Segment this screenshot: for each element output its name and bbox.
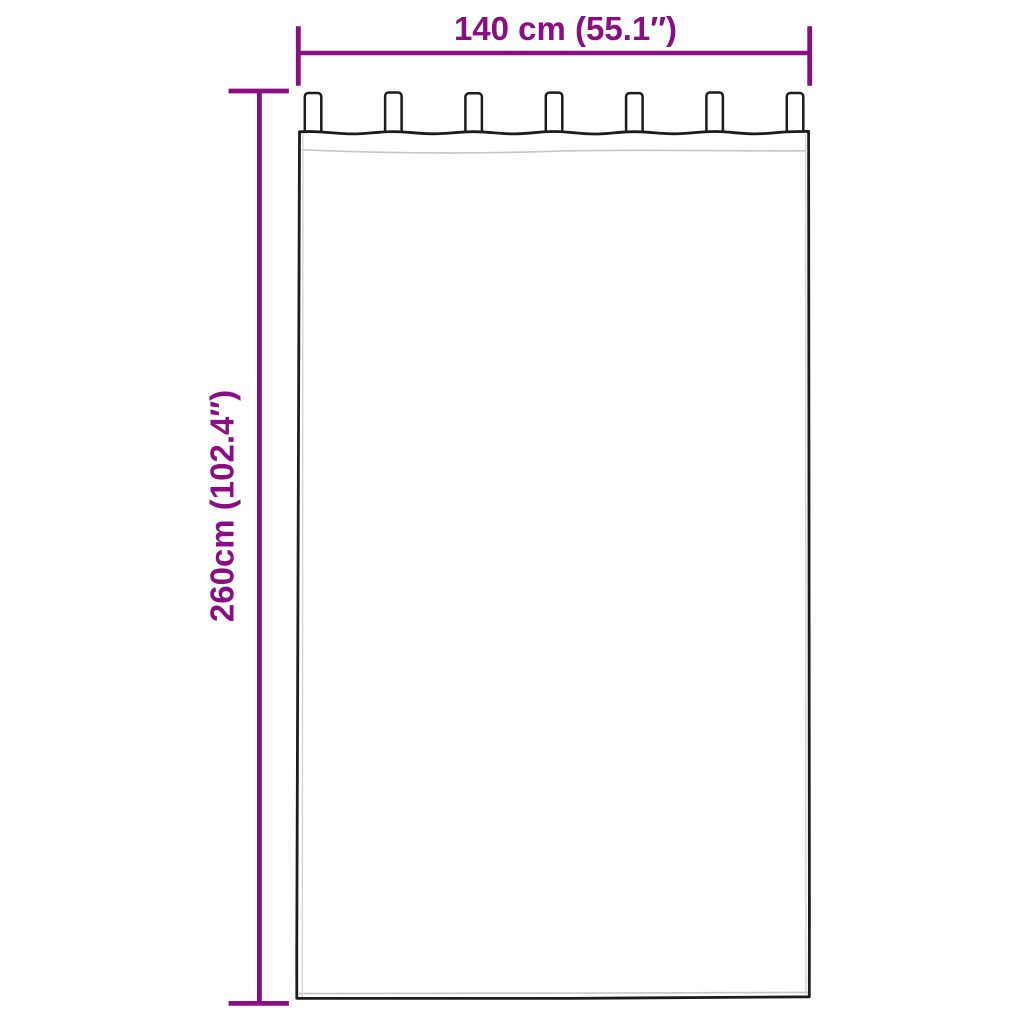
svg-text:140 cm (55.1″): 140 cm (55.1″) (454, 10, 677, 47)
svg-text:260cm (102.4″): 260cm (102.4″) (204, 390, 241, 622)
